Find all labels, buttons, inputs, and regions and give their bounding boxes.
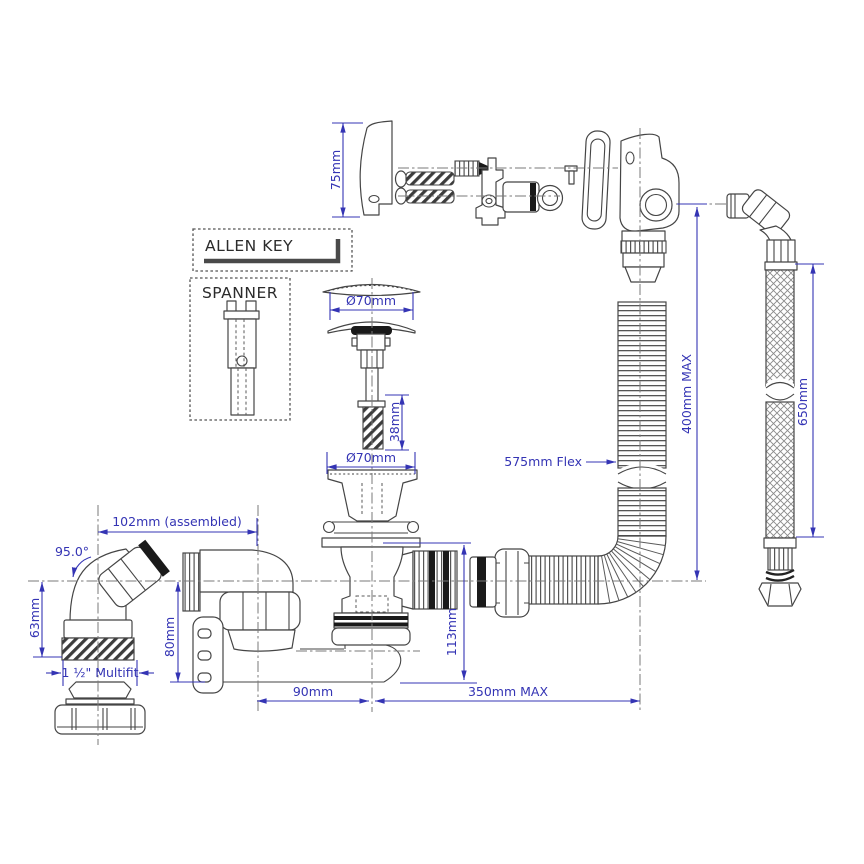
mech-tab-left bbox=[352, 338, 357, 346]
tail-collar bbox=[622, 231, 665, 241]
dimension-102mm-assembled: 102mm (assembled) bbox=[98, 514, 257, 546]
threaded-stud bbox=[363, 407, 383, 449]
dimension-350mm-max: 350mm MAX bbox=[375, 684, 640, 701]
dim-waste-drop: 113mm bbox=[444, 608, 459, 656]
dim-multifit: 1 ½" Multifit bbox=[61, 665, 138, 680]
dim-elbow-assembled: 102mm (assembled) bbox=[112, 514, 242, 529]
multifit-washer bbox=[66, 699, 134, 704]
dimension-38mm: 38mm bbox=[385, 395, 409, 450]
braided-filler-hose bbox=[727, 187, 801, 606]
allen-key-panel: ALLEN KEY bbox=[193, 229, 352, 271]
dim-trap-inlet-drop: 80mm bbox=[162, 617, 177, 657]
multifit-cap bbox=[69, 682, 131, 698]
cylinder-band bbox=[530, 183, 536, 211]
dim-plug-bottom-dia: Ø70mm bbox=[346, 450, 396, 465]
dim-elbow-drop: 63mm bbox=[27, 598, 42, 638]
tail-seal-ring bbox=[477, 557, 486, 607]
dim-elbow-angle: 95.0° bbox=[55, 544, 89, 559]
technical-drawing: ALLEN KEY SPANNER bbox=[0, 0, 864, 864]
dimension-400mm-max: 400mm MAX bbox=[677, 204, 707, 580]
dimension-90mm: 90mm bbox=[257, 684, 369, 701]
screw-head-1 bbox=[396, 171, 407, 187]
dimension-650mm: 650mm bbox=[795, 264, 824, 537]
dimension-70mm-top: Ø70mm bbox=[330, 292, 413, 320]
outlet-seal-1 bbox=[429, 551, 435, 609]
tail-taper bbox=[625, 267, 661, 282]
trap-elbow-body bbox=[200, 550, 293, 592]
overflow-gasket bbox=[582, 130, 611, 229]
waste-assembly bbox=[322, 470, 457, 682]
flex-hose-upper bbox=[618, 302, 666, 468]
compression-hex-nut bbox=[759, 583, 801, 606]
spanner-label: SPANNER bbox=[202, 284, 278, 302]
plug-mech-upper bbox=[357, 334, 385, 350]
braided-upper bbox=[766, 270, 794, 386]
dimension-75mm: 75mm bbox=[328, 123, 363, 217]
outlet-seal-2 bbox=[443, 551, 449, 609]
screw-shaft-1 bbox=[406, 172, 454, 185]
tail-body bbox=[623, 253, 664, 267]
multifit-elbow bbox=[55, 540, 170, 734]
trap-lower-body bbox=[228, 630, 295, 651]
small-screw-shaft bbox=[569, 171, 574, 184]
overflow-outlet-ring bbox=[640, 189, 672, 221]
multifit-nut bbox=[55, 705, 145, 734]
dim-stud-length: 38mm bbox=[387, 402, 402, 442]
dim-outlet-run-max: 350mm MAX bbox=[468, 684, 549, 699]
overflow-assembly bbox=[360, 121, 679, 282]
mech-tab-right bbox=[385, 338, 390, 346]
hose-ribbed-end bbox=[768, 548, 792, 570]
hose-top-collar bbox=[765, 262, 797, 270]
dim-overflow-pipe-max: 400mm MAX bbox=[679, 354, 694, 435]
diagram-canvas: ALLEN KEY SPANNER bbox=[0, 0, 864, 864]
dim-overflow-height: 75mm bbox=[328, 150, 343, 190]
trap-nut-band bbox=[220, 592, 300, 630]
dimension-575mm-flex: 575mm Flex bbox=[504, 454, 616, 469]
flex-hose-horizontal bbox=[528, 556, 598, 604]
dim-pipe-run: 90mm bbox=[293, 684, 333, 699]
dim-flex-label: 575mm Flex bbox=[504, 454, 582, 469]
olive-rings bbox=[766, 570, 794, 581]
hose-bottom-collar bbox=[764, 538, 796, 548]
waste-washer bbox=[324, 522, 419, 534]
flex-hose-nut bbox=[495, 549, 529, 617]
dim-plug-top-dia: Ø70mm bbox=[346, 293, 396, 308]
braided-lower bbox=[766, 402, 794, 538]
waste-backnut bbox=[332, 628, 410, 645]
overflow-faceplate bbox=[360, 121, 392, 215]
flex-hose-mid bbox=[618, 488, 666, 536]
dimension-63mm: 63mm bbox=[27, 582, 62, 657]
allen-key-label: ALLEN KEY bbox=[205, 237, 293, 255]
dim-hose-length: 650mm bbox=[795, 378, 810, 426]
spanner-icon bbox=[224, 301, 259, 415]
cylinder-end bbox=[538, 186, 563, 211]
tail-thread bbox=[621, 241, 666, 253]
trap-threaded-stub bbox=[183, 553, 200, 611]
spanner-panel: SPANNER bbox=[190, 278, 290, 420]
waste-seal-band bbox=[334, 613, 408, 628]
